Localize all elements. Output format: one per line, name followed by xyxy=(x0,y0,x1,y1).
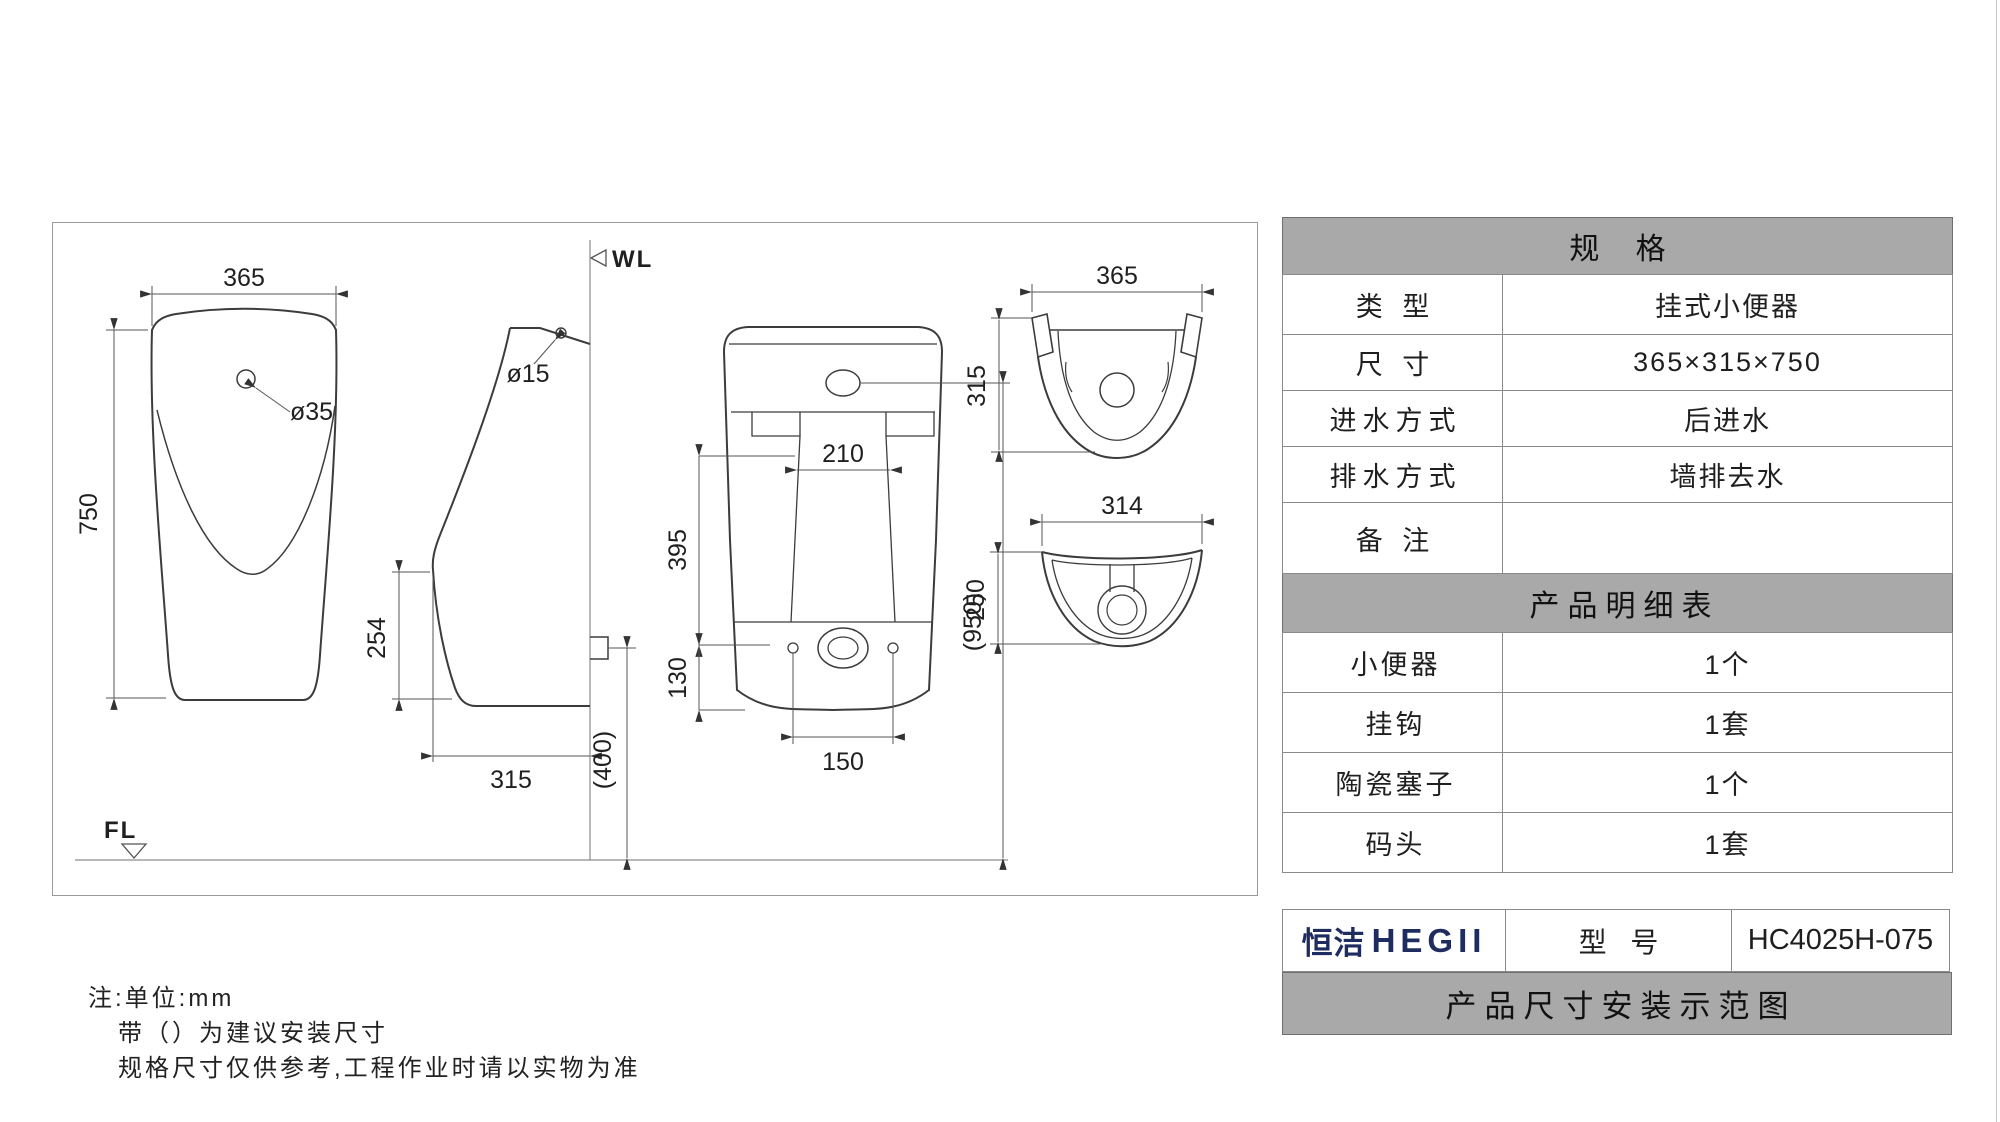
drain-hole-outer xyxy=(818,628,868,668)
rear-outline xyxy=(724,327,942,710)
top-drain-hole xyxy=(1100,373,1134,407)
table-row: 排水方式 墙排去水 xyxy=(1283,447,1953,503)
sheet-caption: 产品尺寸安装示范图 xyxy=(1282,972,1952,1035)
trap-inner xyxy=(1107,595,1137,625)
fl-label: FL xyxy=(104,817,137,844)
rear-basin-height-dim: 395 xyxy=(664,529,692,571)
front-view: ø35 365 750 xyxy=(75,264,336,700)
top-inner-rim xyxy=(1058,331,1176,440)
front-outline xyxy=(152,309,337,700)
spec-sheet-page: { "drawing": { "labels": { "wl": "WL", "… xyxy=(0,0,2000,1122)
model-label: 型 号 xyxy=(1505,909,1732,972)
parts-table-title: 产品明细表 xyxy=(1282,573,1953,633)
parts-qty-urinal: 1个 xyxy=(1502,632,1953,693)
front-height-dim: 750 xyxy=(75,493,103,535)
spec-value-size: 365×315×750 xyxy=(1502,334,1953,391)
top-rim-marks xyxy=(1066,362,1169,392)
side-lower-height-dim: 254 xyxy=(363,617,391,659)
footer-title-block: 恒洁 HEGII 型 号 HC4025H-075 产品尺寸安装示范图 xyxy=(1283,909,1953,1035)
reference-lines xyxy=(75,240,1008,860)
parts-label-hook: 挂钩 xyxy=(1282,692,1503,753)
rear-view: 210 395 130 150 (950) xyxy=(664,327,1010,858)
table-row: 尺 寸 365×315×750 xyxy=(1283,335,1953,391)
parts-qty-hook: 1套 xyxy=(1502,692,1953,753)
bottom-depth-dim: 250 xyxy=(962,579,990,621)
table-row: 挂钩 1套 xyxy=(1283,693,1953,753)
spec-title-text: 规 格 xyxy=(1569,224,1679,268)
table-row: 陶瓷塞子 1个 xyxy=(1283,753,1953,813)
trap-outline xyxy=(1098,586,1146,634)
front-basin-rim xyxy=(157,406,335,574)
parts-qty-bracket: 1套 xyxy=(1502,812,1953,873)
mounting-tabs xyxy=(1032,314,1202,357)
bottom-width-dim: 314 xyxy=(1101,492,1143,520)
table-row: 进水方式 后进水 xyxy=(1283,391,1953,447)
top-depth-dim: 315 xyxy=(963,365,991,407)
drain-hole-inner xyxy=(828,637,858,659)
spec-label-size: 尺 寸 xyxy=(1282,334,1503,391)
brand-cn-text: 恒洁 xyxy=(1302,918,1366,963)
parts-label-plug: 陶瓷塞子 xyxy=(1282,752,1503,813)
side-hole-dia: ø15 xyxy=(506,360,549,388)
bolt-hole-left xyxy=(788,643,798,653)
spec-value-remark xyxy=(1502,502,1953,574)
rear-panel-height-dim: 130 xyxy=(664,657,692,699)
top-width-dim: 365 xyxy=(1096,262,1138,290)
front-inlet-hole xyxy=(237,370,255,388)
note-line-1: 注:单位:mm xyxy=(88,978,234,1013)
side-view: ø15 254 315 (400) xyxy=(363,328,636,858)
spec-value-type: 挂式小便器 xyxy=(1502,274,1953,335)
spec-value-drain: 墙排去水 xyxy=(1502,446,1953,503)
rear-bolt-spacing-dim: 150 xyxy=(822,748,864,776)
note-line-3: 规格尺寸仅供参考,工程作业时请以实物为准 xyxy=(118,1048,641,1083)
brand-logo: 恒洁 HEGII xyxy=(1282,909,1506,972)
brand-en-text: HEGII xyxy=(1372,922,1487,960)
note-line-2: 带（）为建议安装尺寸 xyxy=(118,1013,388,1048)
bolt-hole-right xyxy=(888,643,898,653)
model-value: HC4025H-075 xyxy=(1731,909,1950,972)
spec-table-title: 规 格 xyxy=(1282,217,1953,275)
sheet-caption-text: 产品尺寸安装示范图 xyxy=(1446,981,1797,1026)
technical-drawing: WL FL ø35 365 750 ø15 254 xyxy=(52,222,1256,894)
floor-level-marker: FL xyxy=(104,817,146,858)
side-depth-dim: 315 xyxy=(490,766,532,794)
table-row: 码头 1套 xyxy=(1283,813,1953,873)
front-width-dim: 365 xyxy=(223,264,265,292)
front-hole-dia: ø35 xyxy=(290,398,333,426)
outlet-stub xyxy=(590,637,608,659)
hole-leader xyxy=(256,388,290,412)
footer-row: 恒洁 HEGII 型 号 HC4025H-075 xyxy=(1283,909,1953,972)
table-row: 小便器 1个 xyxy=(1283,633,1953,693)
spec-label-drain: 排水方式 xyxy=(1282,446,1503,503)
parts-qty-plug: 1个 xyxy=(1502,752,1953,813)
spec-parts-table: 规 格 类 型 挂式小便器 尺 寸 365×315×750 进水方式 后进水 排… xyxy=(1283,218,1953,873)
spec-label-type: 类 型 xyxy=(1282,274,1503,335)
page-edge-line xyxy=(1996,0,1997,1122)
wl-label: WL xyxy=(612,246,653,273)
top-view: 365 315 xyxy=(963,262,1202,458)
bottom-view: 314 250 xyxy=(962,492,1202,646)
rear-inlet-hole xyxy=(826,370,860,396)
parts-label-bracket: 码头 xyxy=(1282,812,1503,873)
side-outlet-height-dim: (400) xyxy=(589,731,617,789)
parts-title-text: 产品明细表 xyxy=(1530,581,1720,625)
spec-label-remark: 备 注 xyxy=(1282,502,1503,574)
wall-level-marker: WL xyxy=(591,246,653,273)
parts-label-urinal: 小便器 xyxy=(1282,632,1503,693)
table-row: 备 注 xyxy=(1283,503,1953,574)
spec-label-inlet: 进水方式 xyxy=(1282,390,1503,447)
table-row: 类 型 挂式小便器 xyxy=(1283,275,1953,335)
rear-notch-width-dim: 210 xyxy=(822,440,864,468)
spec-value-inlet: 后进水 xyxy=(1502,390,1953,447)
hanger-notches xyxy=(752,412,934,436)
